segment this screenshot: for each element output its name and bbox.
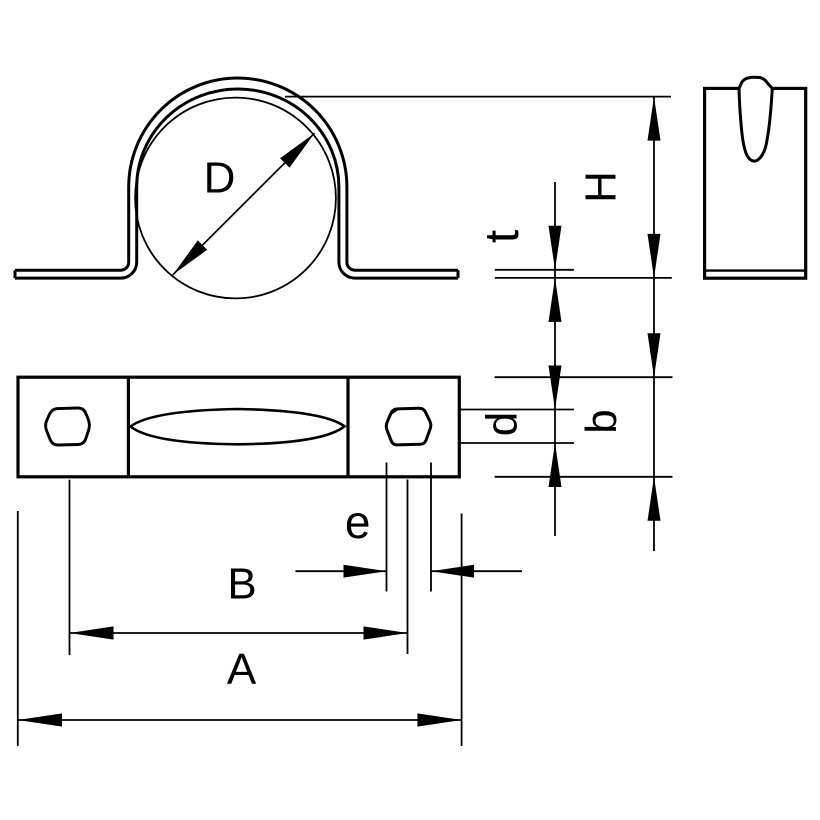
- svg-text:e: e: [345, 496, 371, 548]
- svg-text:B: B: [227, 560, 256, 609]
- svg-text:D: D: [204, 154, 236, 203]
- svg-text:t: t: [476, 230, 529, 243]
- svg-text:H: H: [577, 171, 626, 203]
- svg-text:d: d: [478, 412, 527, 436]
- svg-text:A: A: [227, 645, 257, 694]
- svg-text:b: b: [577, 409, 626, 433]
